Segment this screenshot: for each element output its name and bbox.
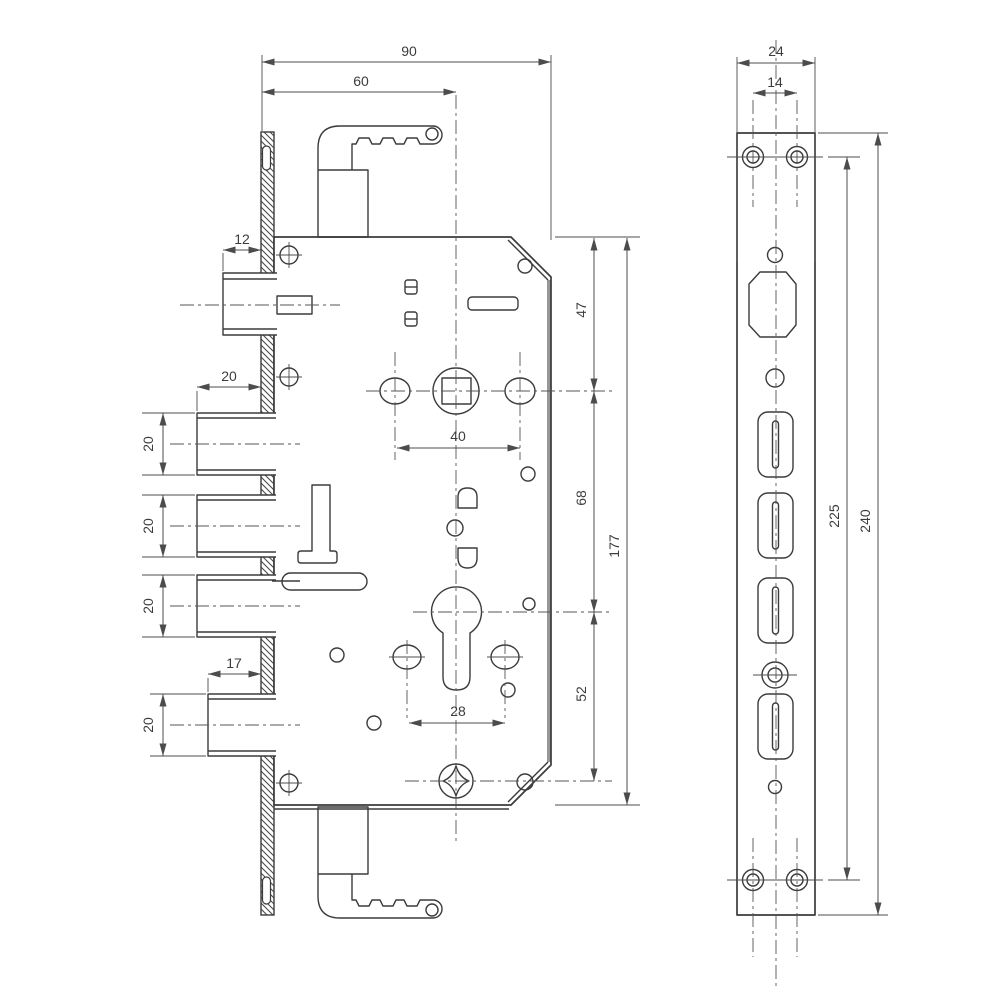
top-hook-bolt: [318, 126, 442, 237]
dim-case-depth: 90: [401, 43, 417, 59]
side-view: 90 60 12 20 17 40 28 20 20 2: [140, 43, 640, 918]
dim-screw-spacing: 14: [767, 74, 783, 90]
bottom-hook-bolt: [318, 807, 442, 918]
strip-bottom-slot: [263, 877, 271, 904]
dim-case-height: 177: [606, 534, 622, 558]
dim-plate-width: 24: [768, 43, 784, 59]
strip-top-slot: [263, 146, 271, 170]
dim-cylinder-screw-spacing: 28: [450, 703, 466, 719]
dim-bolt4-height: 20: [140, 717, 156, 733]
dim-top-to-spindle: 47: [573, 302, 589, 318]
dim-screw-hole-span: 225: [826, 504, 842, 528]
hook-pin-hole: [426, 904, 438, 916]
dim-backset: 60: [353, 73, 369, 89]
dim-latch-width: 12: [234, 231, 250, 247]
dim-spindle-to-cylinder: 68: [573, 490, 589, 506]
dim-bolt-width: 20: [221, 368, 237, 384]
dim-bolt2-height: 20: [140, 518, 156, 534]
technical-drawing-page: 90 60 12 20 17 40 28 20 20 2: [0, 0, 1000, 1000]
dim-handle-screw-spacing: 40: [450, 428, 466, 444]
dim-bolt1-height: 20: [140, 436, 156, 452]
dim-bolt3-height: 20: [140, 598, 156, 614]
dim-cylinder-to-adjuster: 52: [573, 686, 589, 702]
dim-plate-length: 240: [857, 509, 873, 533]
dim-bottom-bolt-width: 17: [226, 655, 242, 671]
lock-drawing-svg: 90 60 12 20 17 40 28 20 20 2: [0, 0, 1000, 1000]
faceplate-view: 24 14 225 240: [727, 40, 888, 988]
hook-pin-hole: [426, 128, 438, 140]
